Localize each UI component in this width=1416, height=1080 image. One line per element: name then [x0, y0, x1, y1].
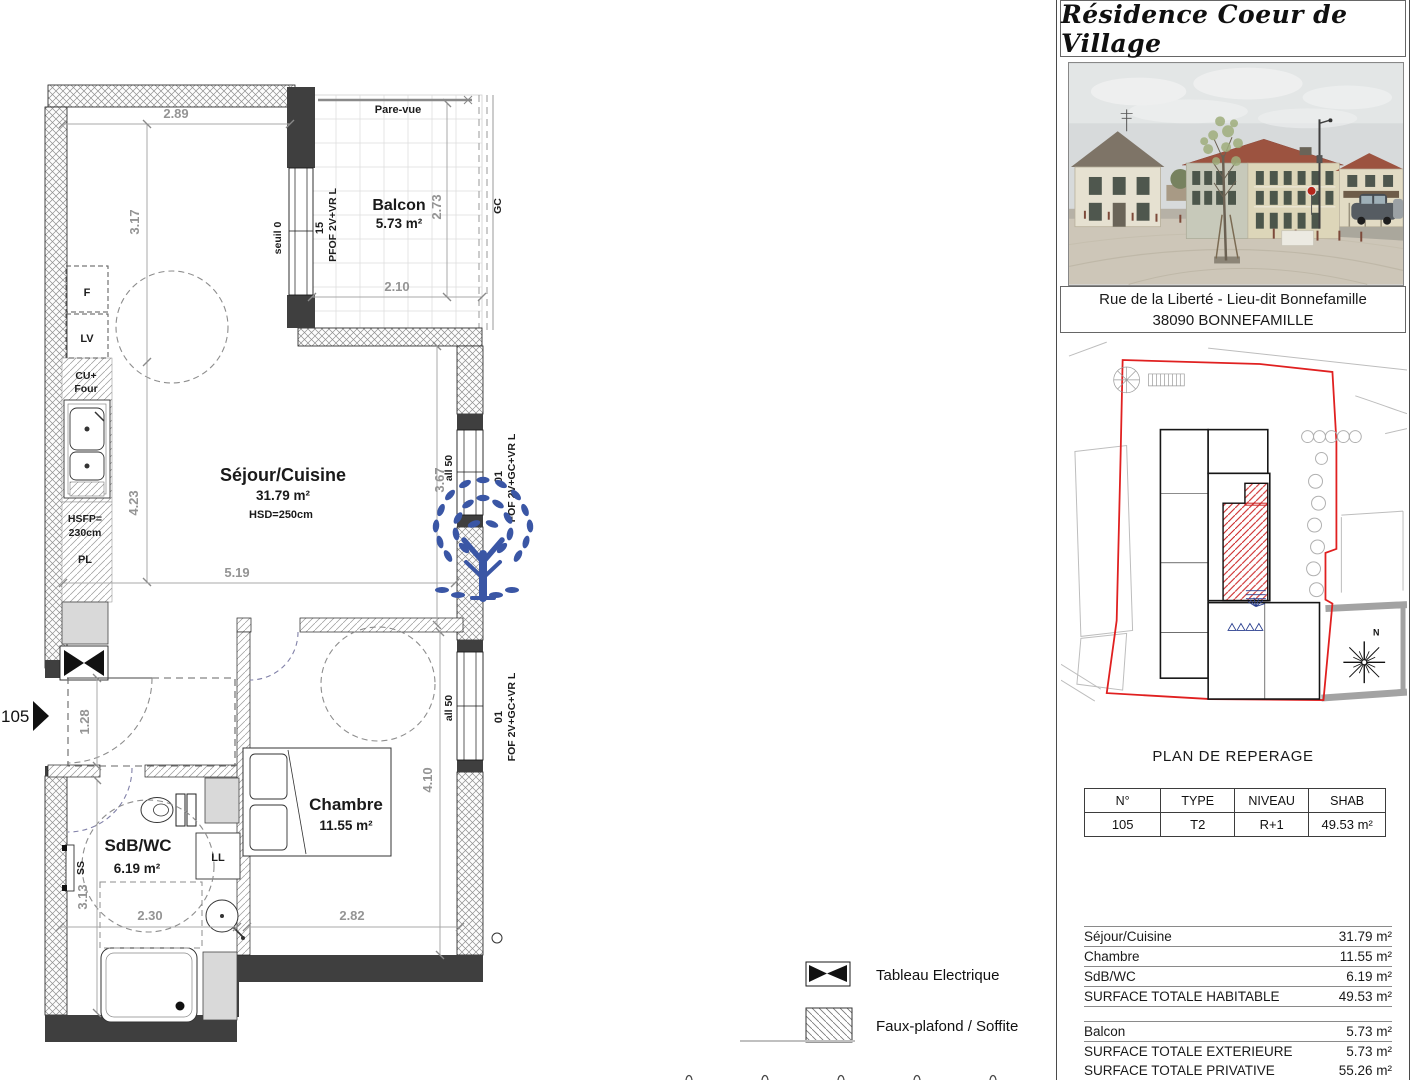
cell-type: T2 [1161, 813, 1235, 837]
dim-210: 2.10 [384, 279, 409, 294]
window01-number-2: 01 [493, 711, 505, 723]
surface-value: 6.19 m² [1346, 969, 1392, 984]
surface-row: Balcon 5.73 m² [1084, 1021, 1392, 1041]
surface-table-habitable: Séjour/Cuisine 31.79 m² Chambre 11.55 m²… [1084, 926, 1392, 1007]
sejour-hsd: HSD=250cm [249, 509, 313, 521]
dim-519: 5.19 [224, 565, 249, 580]
surface-row-total: SURFACE TOTALE EXTERIEURE 5.73 m² [1084, 1041, 1392, 1061]
surface-row: SdB/WC 6.19 m² [1084, 966, 1392, 986]
sdb-name: SdB/WC [104, 836, 171, 855]
surface-value: 5.73 m² [1346, 1024, 1392, 1039]
window01-type-1: FOF 2V+GC+VR L [506, 433, 518, 522]
surface-value: 11.55 m² [1340, 949, 1392, 964]
gc-label: GC [492, 198, 504, 214]
balcon-area: 5.73 m² [376, 216, 423, 231]
duct [205, 778, 239, 823]
info-panel: Résidence Coeur de Village [1056, 0, 1410, 1080]
site-plan-title: PLAN DE REPERAGE [1057, 748, 1409, 765]
kitchen-fixtures [60, 266, 110, 680]
ss-label: SS [75, 861, 87, 875]
surface-table-exterieure: Balcon 5.73 m² SURFACE TOTALE EXTERIEURE… [1084, 1021, 1392, 1080]
col-shab: SHAB [1309, 789, 1386, 813]
entry-arrow-icon [33, 701, 49, 731]
legend-soffit-label: Faux-plafond / Soffite [876, 1018, 1018, 1035]
surface-row-total: SURFACE TOTALE HABITABLE 49.53 m² [1084, 986, 1392, 1006]
balcon-name: Balcon [372, 197, 425, 214]
dim-317: 3.17 [127, 209, 142, 234]
surface-label: Chambre [1084, 949, 1140, 964]
unit-number-label: 105 [1, 707, 29, 726]
stair-spiral [1114, 367, 1185, 393]
chambre-area: 11.55 m² [319, 818, 373, 833]
seuil-label: seuil 0 [272, 221, 284, 254]
address-line2: 38090 BONNEFAMILLE [1153, 310, 1314, 331]
legend-electric-label: Tableau Electrique [876, 967, 999, 984]
surface-label: Balcon [1084, 1024, 1125, 1039]
dim-282: 2.82 [339, 908, 364, 923]
cooktop-label-2: Four [74, 383, 97, 395]
window01-type-2: FOF 2V+GC+VR L [506, 672, 518, 761]
sejour-area: 31.79 m² [256, 488, 311, 503]
surface-value: 55.26 m² [1339, 1063, 1392, 1078]
col-num: N° [1085, 789, 1161, 813]
col-niveau: NIVEAU [1235, 789, 1309, 813]
surface-row: Chambre 11.55 m² [1084, 946, 1392, 966]
building-photo-image [1069, 63, 1403, 285]
toilet-cistern [176, 794, 185, 826]
dim-410: 4.10 [420, 767, 435, 792]
cooktop-label-1: CU+ [75, 370, 96, 382]
dim-423: 4.23 [126, 490, 141, 515]
allege-label-1: all 50 [443, 455, 455, 481]
unit-location-hatch [1223, 503, 1268, 600]
legend: Tableau Electrique Faux-plafond / Soffit… [806, 962, 1018, 1042]
hsfp-label: HSFP= [68, 513, 102, 525]
window15-number: 15 [314, 222, 326, 234]
surface-value: 5.73 m² [1346, 1044, 1392, 1059]
fridge-label: F [84, 287, 91, 299]
surface-label: SURFACE TOTALE HABITABLE [1084, 989, 1280, 1004]
col-type: TYPE [1161, 789, 1235, 813]
site-plan: N [1061, 333, 1407, 739]
cell-num: 105 [1085, 813, 1161, 837]
shower-tray [101, 948, 197, 1022]
scale-bar-marks [686, 1076, 996, 1080]
surface-value: 49.53 m² [1339, 989, 1392, 1004]
surface-label: Séjour/Cuisine [1084, 929, 1172, 944]
dim-230: 2.30 [137, 908, 162, 923]
surface-row: Séjour/Cuisine 31.79 m² [1084, 926, 1392, 946]
chambre-door-swing [250, 632, 298, 680]
project-title: Résidence Coeur de Village [1060, 0, 1406, 57]
chambre-name: Chambre [309, 795, 383, 814]
cell-shab: 49.53 m² [1309, 813, 1386, 837]
pare-vue-label: Pare-vue [375, 104, 421, 116]
sdb-door-swing [68, 768, 132, 832]
floor-plan-drawing: 2.89 3.17 4.23 5.19 2.10 2.73 3.67 1.28 … [0, 0, 1056, 1080]
dim-313: 3.13 [75, 884, 90, 909]
building-photo [1068, 62, 1404, 286]
dishwasher-label: LV [80, 333, 94, 345]
surface-row-total: SURFACE TOTALE PRIVATIVE 55.26 m² [1084, 1061, 1392, 1080]
trees [1302, 431, 1362, 597]
balcony-door-window [289, 168, 313, 295]
kitchen-duct [62, 602, 108, 644]
cell-niveau: R+1 [1235, 813, 1309, 837]
address-block: Rue de la Liberté - Lieu-dit Bonnefamill… [1060, 286, 1406, 333]
misc-marks [492, 933, 996, 1080]
surface-label: SURFACE TOTALE EXTERIEURE [1084, 1044, 1293, 1059]
ll-label: LL [211, 852, 225, 864]
dim-289: 2.89 [163, 106, 188, 121]
soffit-hatch-icon [806, 1008, 852, 1042]
window15-type: PFOF 2V+VR L [327, 188, 339, 262]
surface-value: 31.79 m² [1339, 929, 1392, 944]
placard-label: PL [78, 554, 92, 566]
compass-rose: N [1343, 627, 1385, 683]
dim-273: 2.73 [429, 194, 444, 219]
entry-marker: 105 [1, 701, 49, 731]
floorplan-sheet: { "colors": { "wall_dark": "#3f3f3f", "d… [0, 0, 1416, 1080]
address-line1: Rue de la Liberté - Lieu-dit Bonnefamill… [1099, 289, 1367, 310]
north-label: N [1373, 627, 1379, 637]
door-stop [492, 933, 502, 943]
sdb-area: 6.19 m² [114, 861, 161, 876]
surface-label: SURFACE TOTALE PRIVATIVE [1084, 1063, 1275, 1078]
sejour-name: Séjour/Cuisine [220, 465, 346, 485]
unit-table: N° TYPE NIVEAU SHAB 105 T2 R+1 49.53 m² [1084, 788, 1386, 837]
allege-label-2: all 50 [443, 695, 455, 721]
site-plan-drawing: N [1061, 333, 1407, 739]
dim-128: 1.28 [77, 709, 92, 734]
towel-radiator [66, 845, 74, 891]
surface-label: SdB/WC [1084, 969, 1136, 984]
hsfp-value: 230cm [69, 527, 102, 539]
duct2 [203, 952, 237, 1020]
